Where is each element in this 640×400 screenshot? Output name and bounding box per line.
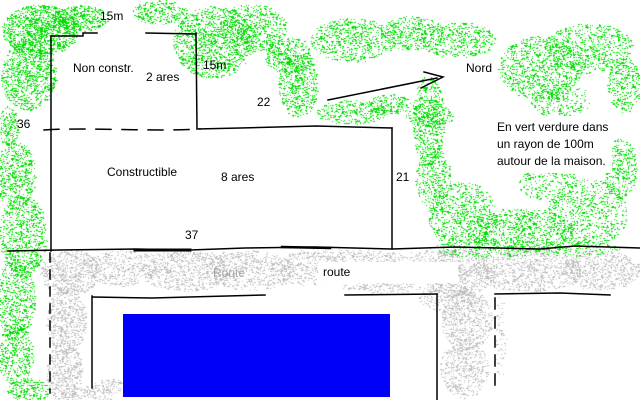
road-top-overdraw-2 — [282, 247, 330, 248]
main-parcel-top-edge — [197, 126, 392, 129]
verdure-note-box: En vert verdure dans un rayon de 100m au… — [493, 116, 612, 173]
road-bottom-right-boundary — [495, 293, 610, 295]
road-bottom-mid-boundary — [345, 294, 437, 295]
label-upper-parcel-name: Non constr. — [73, 61, 134, 75]
label-south-side: 37 — [185, 228, 198, 242]
label-upper-right-side: 15m — [203, 58, 226, 72]
label-nord: Nord — [466, 61, 492, 75]
route-label-box: route — [318, 262, 458, 283]
road-bottom-left-boundary — [93, 295, 265, 298]
parcel-divider-dashed — [44, 129, 200, 130]
label-main-parcel-name: Constructible — [107, 165, 177, 179]
label-main-parcel-area: 8 ares — [221, 170, 254, 184]
note-line-2: un rayon de 100m — [497, 136, 608, 153]
upper-parcel-top-edge-left — [51, 33, 97, 36]
label-north-east-side: 22 — [257, 95, 270, 109]
north-arrow — [328, 72, 443, 100]
label-top-side: 15m — [100, 9, 123, 23]
note-line-1: En vert verdure dans — [497, 119, 608, 136]
plot-sketch: 15m 15m 22 36 21 37 Non constr. 2 ares C… — [0, 0, 640, 400]
note-line-3: autour de la maison. — [497, 153, 608, 170]
upper-parcel-top-edge-right — [146, 33, 196, 34]
label-east-side: 21 — [396, 170, 409, 184]
label-west-side: 36 — [17, 117, 30, 131]
route-label: route — [323, 265, 350, 279]
route-faint-label: Route — [213, 266, 245, 280]
label-upper-parcel-area: 2 ares — [146, 70, 179, 84]
voisin-zone: voisin — [123, 314, 390, 397]
upper-parcel-right-edge — [196, 33, 197, 128]
